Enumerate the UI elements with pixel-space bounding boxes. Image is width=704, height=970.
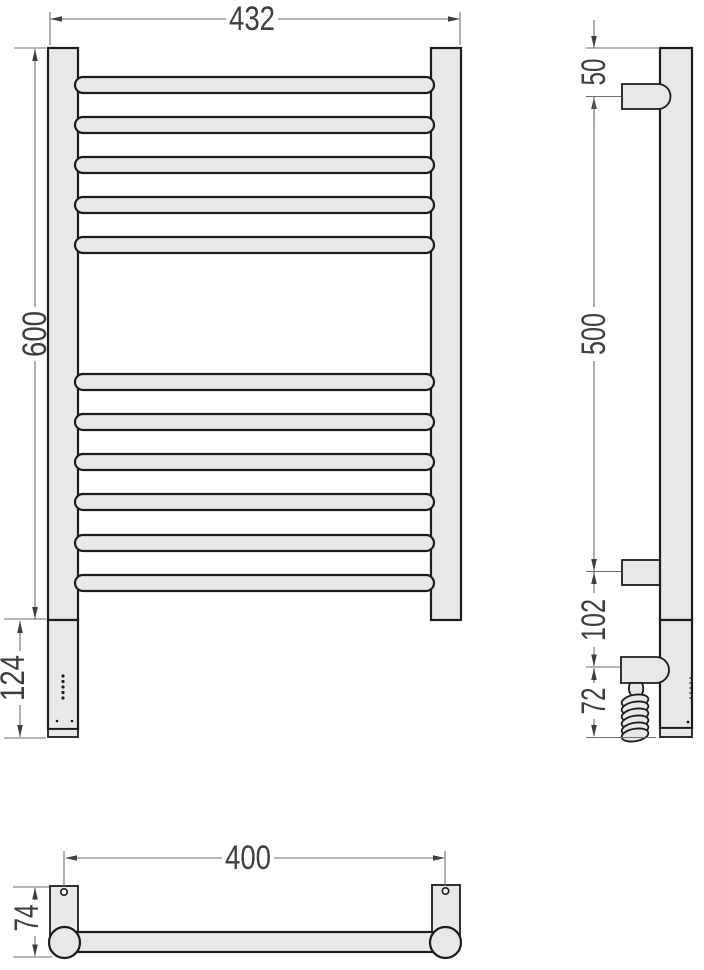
front-right-post [431,48,461,620]
rungs [75,77,434,591]
rung [75,157,434,173]
side-element-end-cap [660,728,692,737]
dim-lower-bracket-to-element: 102 [575,572,620,667]
rung [75,575,434,591]
dim-label-mounting-distance: 400 [225,839,271,877]
towel-rail-technical-drawing: 432 600 124 [0,0,704,970]
dim-label-rail-height: 600 [16,311,54,357]
front-view: 432 600 124 [0,0,461,738]
dim-mounting-distance: 400 [64,839,445,887]
dim-label-lower-bracket-to-element: 102 [575,599,613,641]
side-view: 50 500 102 72 [575,20,693,743]
rung [75,494,434,510]
rung [75,414,434,430]
dim-label-depth: 74 [8,905,46,932]
dim-element-section: 124 [0,621,46,738]
wall-bracket-upper [622,84,671,109]
rung [75,535,434,551]
drawing-canvas: 432 600 124 [0,0,704,970]
rung [75,237,434,253]
coiled-cable [621,693,650,744]
dim-label-element-to-bottom: 72 [575,688,613,715]
dim-upper-to-lower-bracket: 500 [575,97,621,572]
element-knob [621,657,669,683]
dim-label-upper-to-lower-bracket: 500 [575,313,613,355]
rung [75,374,434,390]
dim-label-top-to-upper-bracket: 50 [575,59,613,86]
side-tube [660,48,692,620]
top-view: 400 74 [8,839,461,958]
wall-bracket-lower [622,560,664,585]
rung [75,197,434,213]
rung [75,117,434,133]
vertical-tube-section-left [49,927,80,958]
vertical-tube-section-right [430,927,461,958]
heating-element-end-cap [48,729,78,737]
screw-hole-left [61,889,67,895]
cross-tube [64,932,446,952]
screw-hole-right [442,888,448,894]
dim-label-overall-width: 432 [229,0,275,38]
rung [75,77,434,93]
dim-rail-height: 600 [4,48,54,619]
dim-overall-width: 432 [50,0,460,45]
rung [75,454,434,470]
dim-label-element-section: 124 [0,655,32,701]
dim-depth: 74 [8,887,52,957]
